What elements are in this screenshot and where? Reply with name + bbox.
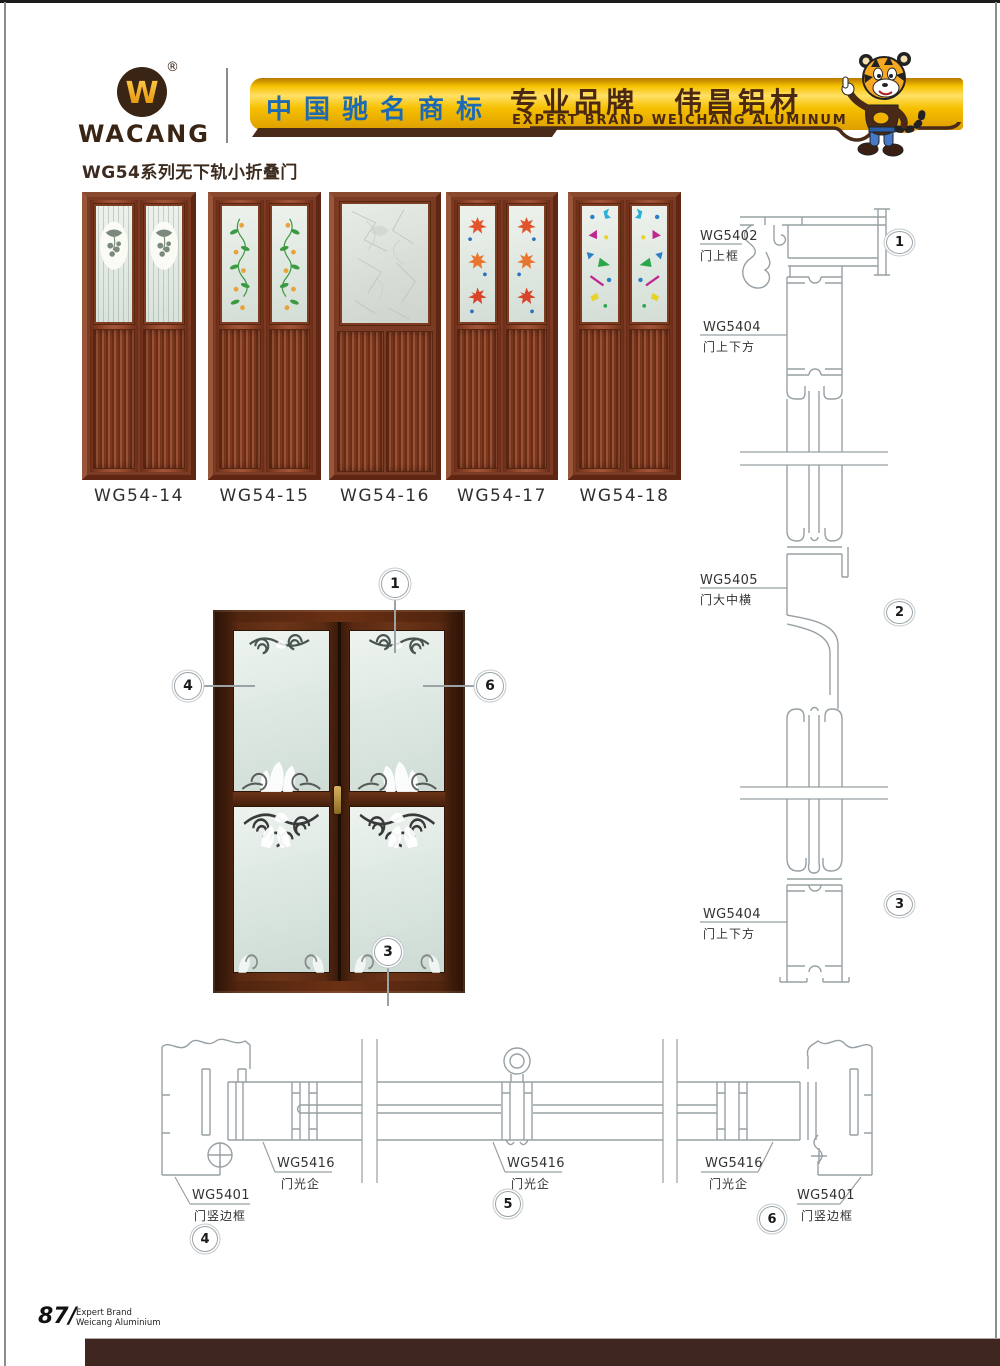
- color-shapes-decor: [580, 204, 620, 324]
- tiger-mascot-icon: [836, 45, 928, 157]
- vine-flowers-decor: [220, 204, 260, 324]
- door-diagram: [213, 610, 465, 993]
- profile-code: WG5404: [703, 907, 761, 922]
- profile-name: 门竖边框: [194, 1207, 246, 1224]
- profile-code: WG5416: [507, 1156, 565, 1171]
- product-door-wg54-16: [329, 192, 441, 480]
- callout-line: [387, 966, 389, 1006]
- vine-flowers-decor: [270, 204, 310, 324]
- footer-tagline: Expert Brand Weicang Aluminium: [76, 1308, 161, 1328]
- banner-slogan-cn-left: 中国驰名商标: [266, 89, 494, 126]
- profile-name: 门大中横: [700, 591, 752, 608]
- profile-code: WG5416: [705, 1156, 763, 1171]
- right-rule: [995, 2, 997, 1366]
- profile-name: 门光企: [511, 1175, 550, 1192]
- callout-6: 6: [476, 672, 504, 700]
- registered-trademark-icon: ®: [166, 60, 179, 75]
- diagram-mid-rail: [233, 792, 330, 806]
- header-divider: [226, 68, 228, 143]
- callout-line: [202, 685, 255, 687]
- profile-name: 门上下方: [703, 925, 755, 942]
- product-door-wg54-17: [446, 192, 558, 480]
- diagram-glass-upper: [349, 630, 446, 792]
- profile-code: WG5402: [700, 229, 758, 244]
- banner-slogan-en: EXPERT BRAND WEICHANG ALUMINUM: [512, 113, 848, 128]
- diagram-glass-lower: [233, 806, 330, 973]
- section-callout-4: 4: [192, 1226, 218, 1252]
- product-label: WG54-15: [200, 486, 329, 506]
- section-callout-5: 5: [495, 1191, 521, 1217]
- footer-bar: [85, 1338, 1000, 1366]
- maple-leaves-decor: [507, 204, 546, 324]
- color-shapes-decor: [630, 204, 670, 324]
- section-callout-1: 1: [886, 231, 913, 254]
- section-callout-2: 2: [886, 601, 913, 624]
- floral-decor: [349, 630, 446, 792]
- oval-medallion-decor: [94, 204, 134, 324]
- header-banner: 中国驰名商标 专业品牌伟昌铝材 EXPERT BRAND WEICHANG AL…: [250, 78, 963, 130]
- wacang-logo-icon: W: [117, 67, 167, 117]
- section-callout-6: 6: [759, 1206, 785, 1232]
- callout-3: 3: [374, 938, 402, 966]
- diagram-mid-rail: [349, 792, 446, 806]
- floral-decor: [233, 630, 330, 792]
- svg-text:W: W: [125, 76, 158, 111]
- callout-line: [423, 685, 476, 687]
- profile-code: WG5401: [797, 1188, 855, 1203]
- profile-code: WG5416: [277, 1156, 335, 1171]
- profile-name: 门光企: [281, 1175, 320, 1192]
- profile-name: 门竖边框: [801, 1207, 853, 1224]
- diagram-glass-upper: [233, 630, 330, 792]
- callout-4: 4: [174, 672, 202, 700]
- page-title: WG54系列无下轨小折叠门: [82, 158, 298, 183]
- profile-code: WG5404: [703, 320, 761, 335]
- profile-name: 门上下方: [703, 338, 755, 355]
- profile-name: 门上框: [700, 247, 739, 264]
- product-label: WG54-16: [321, 486, 449, 506]
- oval-medallion-decor: [144, 204, 184, 324]
- profile-name: 门光企: [709, 1175, 748, 1192]
- product-label: WG54-14: [74, 486, 204, 506]
- page-number: 87/: [38, 1304, 77, 1329]
- left-rule: [4, 2, 6, 1366]
- product-door-wg54-14: [82, 192, 196, 480]
- callout-line: [394, 598, 396, 653]
- maple-leaves-decor: [458, 204, 497, 324]
- profile-code: WG5401: [192, 1188, 250, 1203]
- product-label: WG54-17: [438, 486, 566, 506]
- product-label: WG54-18: [560, 486, 689, 506]
- section-callout-3: 3: [886, 893, 913, 916]
- brand-wordmark: WACANG: [78, 120, 228, 148]
- product-door-wg54-15: [208, 192, 321, 480]
- frost-crackle-decor: [340, 202, 430, 325]
- catalog-page: W ® WACANG 中国驰名商标 专业品牌伟昌铝材 EXPERT BRAND …: [0, 0, 1000, 1366]
- product-door-wg54-18: [568, 192, 681, 480]
- door-handle: [334, 786, 341, 814]
- callout-1: 1: [381, 570, 409, 598]
- floral-decor: [233, 806, 330, 973]
- horizontal-section-drawing: [150, 1035, 890, 1265]
- top-rule: [0, 0, 1000, 3]
- profile-code: WG5405: [700, 573, 758, 588]
